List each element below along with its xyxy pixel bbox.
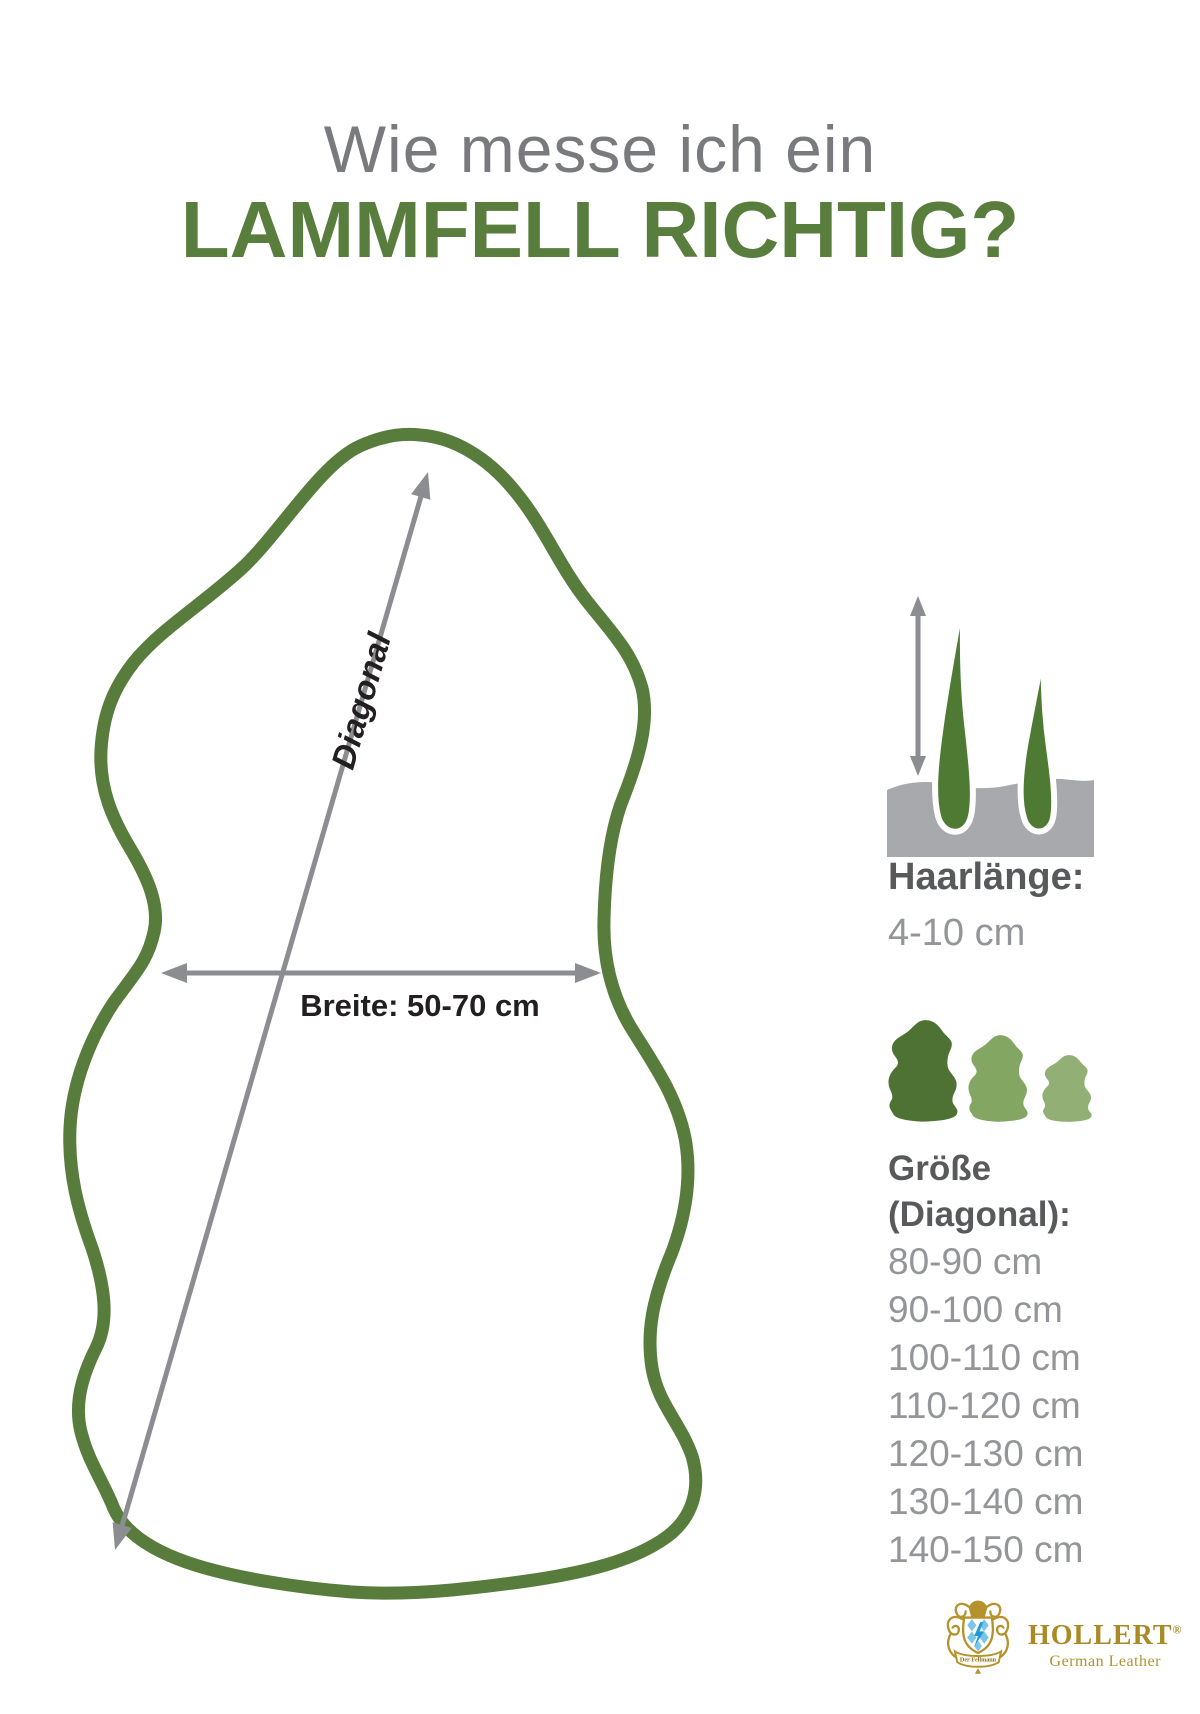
arrowhead-up-icon: [411, 469, 437, 500]
diagonal-label: Diagonal: [324, 628, 398, 773]
size-heading-line-1: Größe: [888, 1146, 1071, 1192]
size-heading-line-2: (Diagonal):: [888, 1192, 1071, 1238]
crest-banner-text: Der Fellmann: [960, 1657, 997, 1663]
hair-strand-small-icon: [1021, 646, 1055, 832]
hair-length-heading: Haarlänge:: [888, 856, 1084, 899]
silhouette-large-icon: [888, 1020, 957, 1122]
silhouette-medium-icon: [968, 1035, 1027, 1122]
arrowhead-right-icon: [575, 963, 601, 983]
width-arrow: [161, 963, 601, 983]
hair-measure-arrow-icon: [910, 596, 926, 776]
hair-length-icon: [887, 588, 1094, 857]
brand-tagline: German Leather: [1028, 1653, 1182, 1671]
brand-word: HOLLERT: [1028, 1620, 1173, 1651]
silhouette-small-icon: [1042, 1055, 1091, 1122]
size-options-list: 80-90 cm 90-100 cm 100-110 cm 110-120 cm…: [888, 1238, 1083, 1574]
registered-mark: ®: [1173, 1623, 1183, 1637]
size-option: 120-130 cm: [888, 1430, 1083, 1478]
hair-length-value: 4-10 cm: [888, 912, 1025, 955]
infographic-poster: Wie messe ich ein LAMMFELL RICHTIG? Diag…: [0, 0, 1200, 1714]
size-heading: Größe (Diagonal):: [888, 1146, 1071, 1238]
hair-strand-large-icon: [935, 588, 973, 832]
hollert-crest-icon: Der Fellmann: [938, 1596, 1018, 1676]
size-option: 80-90 cm: [888, 1238, 1083, 1286]
crest-tassel-icon: [975, 1668, 981, 1673]
brand-name: HOLLERT®: [1028, 1620, 1182, 1652]
size-silhouettes-icon: [888, 1020, 1091, 1122]
skin-block-icon: [887, 779, 1094, 857]
arrowhead-left-icon: [161, 963, 187, 983]
size-option: 130-140 cm: [888, 1478, 1083, 1526]
size-option: 110-120 cm: [888, 1382, 1083, 1430]
hollert-logo: Der Fellmann HOLLERT® German Leather: [938, 1596, 1182, 1676]
width-label: Breite: 50-70 cm: [300, 988, 540, 1023]
brand-text-block: HOLLERT® German Leather: [1028, 1620, 1182, 1671]
size-option: 100-110 cm: [888, 1334, 1083, 1382]
ram-head-icon: [956, 1601, 1000, 1619]
size-option: 140-150 cm: [888, 1526, 1083, 1574]
size-option: 90-100 cm: [888, 1286, 1083, 1334]
